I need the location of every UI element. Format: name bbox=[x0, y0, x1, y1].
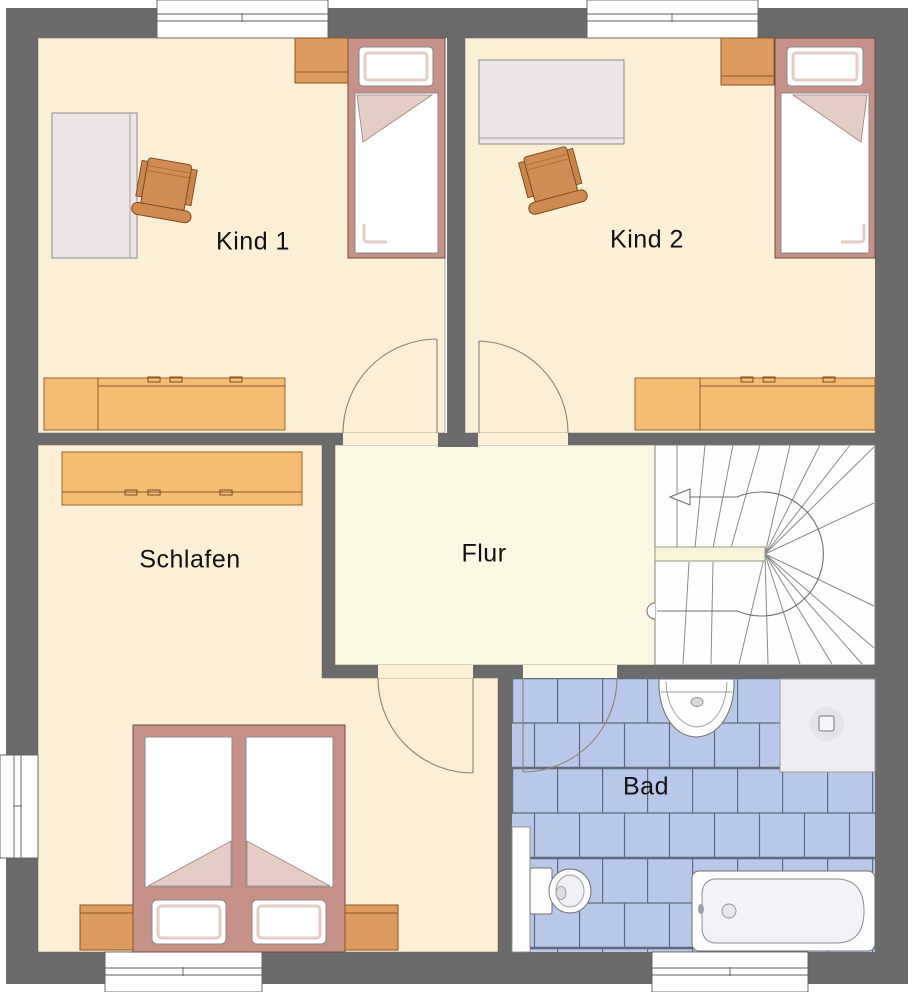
window-schlafen-bottom bbox=[105, 952, 262, 992]
schlafen-wardrobe bbox=[62, 452, 302, 505]
floor-plan: Kind 1 Kind 2 Schlafen Flur Bad bbox=[0, 0, 914, 992]
floor-plan-drawing bbox=[0, 0, 914, 992]
room-label-schlafen: Schlafen bbox=[139, 546, 240, 575]
bathtub-faucet-icon bbox=[698, 904, 704, 914]
shower-drain-icon bbox=[819, 716, 834, 731]
room-label-kind2: Kind 2 bbox=[610, 226, 684, 255]
wall-flur-left bbox=[322, 445, 335, 665]
schlafen-double-bed bbox=[133, 725, 345, 952]
room-label-flur: Flur bbox=[461, 540, 506, 569]
schlafen-nightstand-left bbox=[80, 905, 133, 950]
wall-kids-divider bbox=[447, 38, 465, 445]
kind1-sideboard bbox=[44, 377, 285, 430]
kind1-bed bbox=[348, 38, 445, 258]
window-kind1 bbox=[157, 0, 328, 38]
toilet-partition bbox=[512, 827, 530, 952]
kind1-chair bbox=[131, 156, 200, 224]
bathtub bbox=[692, 871, 875, 951]
window-kind2 bbox=[587, 0, 758, 38]
schlafen-nightstand-right bbox=[345, 905, 398, 950]
wall-top bbox=[6, 8, 908, 38]
wall-bad-left bbox=[498, 678, 512, 952]
kind1-desk bbox=[52, 113, 137, 258]
bathtub-drain-icon bbox=[722, 904, 736, 918]
staircase bbox=[647, 445, 875, 665]
window-bad-bottom bbox=[652, 952, 808, 992]
wall-kids-divider-foot bbox=[438, 433, 478, 447]
shower bbox=[780, 679, 875, 772]
kind2-nightstand bbox=[721, 38, 774, 85]
window-schlafen-left bbox=[0, 755, 38, 858]
room-label-kind1: Kind 1 bbox=[216, 228, 290, 257]
kind1-nightstand bbox=[295, 38, 348, 83]
kind2-sideboard bbox=[635, 377, 875, 430]
wall-right bbox=[875, 8, 908, 984]
basin-faucet-icon bbox=[691, 698, 703, 707]
kind2-bed bbox=[775, 38, 875, 258]
kind2-desk bbox=[479, 60, 624, 144]
room-label-bad: Bad bbox=[623, 773, 669, 802]
stair-divider bbox=[655, 547, 765, 561]
